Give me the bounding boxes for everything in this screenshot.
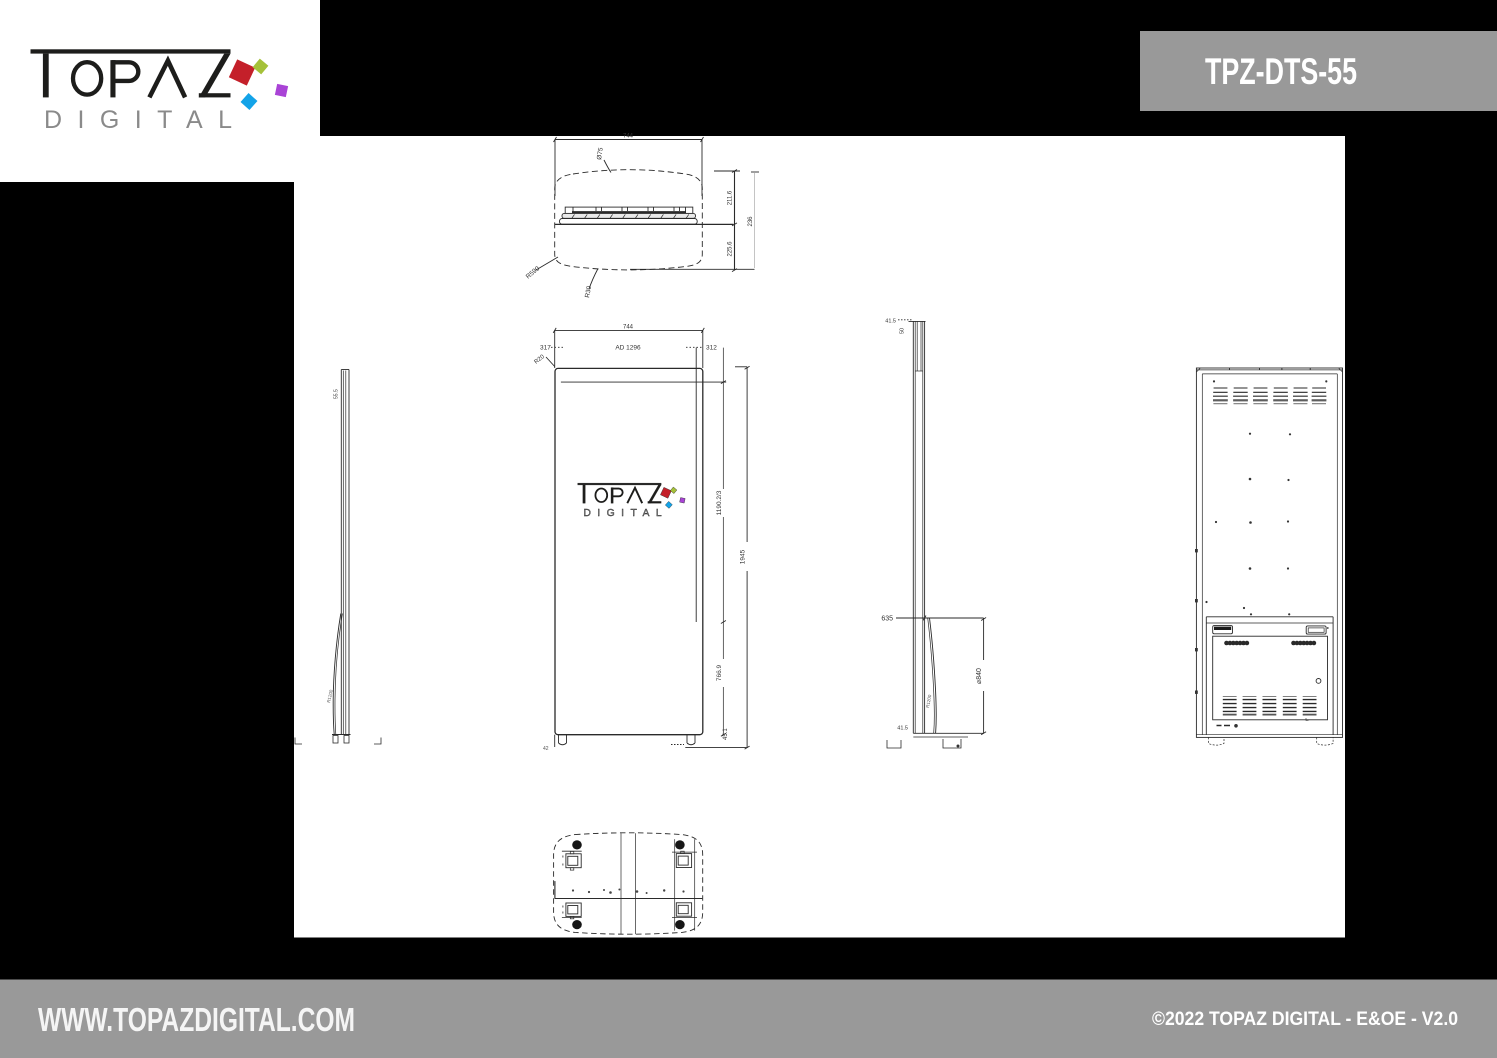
svg-text:50: 50 [900, 328, 906, 334]
svg-text:1190.2/3: 1190.2/3 [716, 490, 723, 515]
svg-text:236: 236 [748, 216, 754, 227]
svg-text:©2022 TOPAZ DIGITAL - E&OE - V: ©2022 TOPAZ DIGITAL - E&OE - V2.0 [1152, 1009, 1458, 1030]
svg-text:41.5: 41.5 [897, 726, 908, 732]
svg-text:45.1: 45.1 [723, 728, 729, 740]
svg-text:41.5: 41.5 [885, 319, 896, 325]
svg-text:⌀840: ⌀840 [976, 668, 983, 684]
svg-text:225.6: 225.6 [727, 241, 733, 257]
svg-text:312: 312 [706, 345, 717, 352]
svg-text:42: 42 [543, 746, 549, 752]
svg-text:55.5: 55.5 [334, 389, 340, 399]
svg-text:1945: 1945 [740, 549, 747, 564]
svg-text:WWW.TOPAZDIGITAL.COM: WWW.TOPAZDIGITAL.COM [38, 1001, 355, 1038]
svg-text:AD 1296: AD 1296 [615, 345, 641, 352]
svg-text:317: 317 [540, 345, 551, 352]
svg-text:744: 744 [623, 325, 634, 331]
svg-text:211.6: 211.6 [727, 190, 733, 205]
svg-text:744: 744 [623, 134, 634, 140]
svg-text:766.9: 766.9 [716, 664, 723, 681]
svg-text:TPZ-DTS-55: TPZ-DTS-55 [1205, 51, 1357, 92]
svg-text:635: 635 [881, 616, 893, 623]
